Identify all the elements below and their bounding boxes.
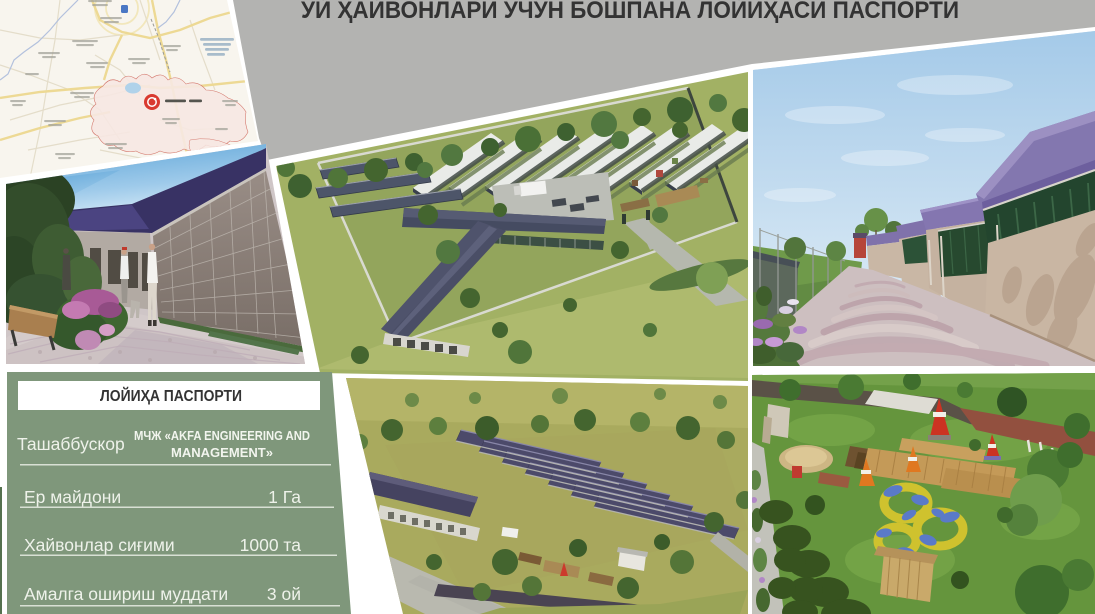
svg-text:Ер майдони: Ер майдони: [24, 487, 121, 507]
svg-text:1 Га: 1 Га: [268, 487, 301, 507]
svg-text:MANAGEMENT»: MANAGEMENT»: [171, 446, 273, 460]
svg-text:Амалга ошириш муддати: Амалга ошириш муддати: [24, 584, 228, 604]
svg-text:УЙ ҲАЙВОНЛАРИ УЧУН БОШПАНА ЛОЙ: УЙ ҲАЙВОНЛАРИ УЧУН БОШПАНА ЛОЙИҲАСИ ПАСП…: [301, 0, 959, 24]
svg-text:МЧЖ «AKFA ENGINEERING AND: МЧЖ «AKFA ENGINEERING AND: [134, 429, 310, 443]
svg-text:3 ой: 3 ой: [267, 584, 301, 604]
svg-text:Хайвонлар сиғими: Хайвонлар сиғими: [24, 535, 175, 555]
svg-text:Ташаббускор: Ташаббускор: [17, 434, 125, 454]
svg-text:ЛОЙИҲА ПАСПОРТИ: ЛОЙИҲА ПАСПОРТИ: [100, 386, 242, 405]
svg-text:1000 та: 1000 та: [240, 535, 302, 555]
